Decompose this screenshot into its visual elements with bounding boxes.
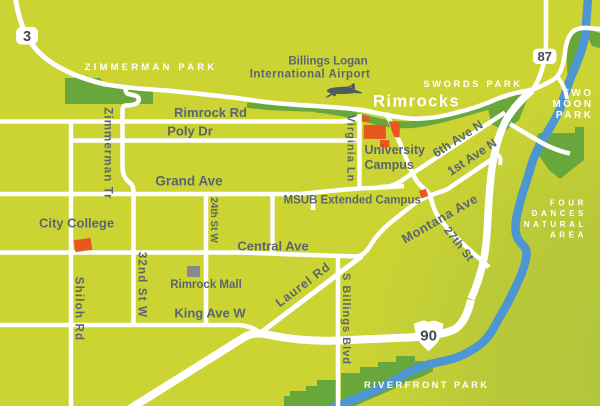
svg-text:S Billings Blvd: S Billings Blvd: [340, 273, 352, 365]
svg-text:Shiloh Rd: Shiloh Rd: [73, 277, 85, 341]
svg-text:TWO: TWO: [563, 88, 594, 99]
svg-text:Zimmerman Tr: Zimmerman Tr: [102, 107, 114, 199]
svg-text:Central Ave: Central Ave: [237, 239, 308, 254]
svg-text:SWORDS PARK: SWORDS PARK: [423, 78, 522, 89]
svg-text:PARK: PARK: [556, 110, 594, 121]
svg-text:Rimrock Rd: Rimrock Rd: [174, 105, 247, 120]
svg-text:University: University: [365, 143, 425, 157]
svg-text:FOUR: FOUR: [550, 199, 587, 208]
svg-text:DANCES: DANCES: [532, 209, 587, 218]
svg-text:24th St W: 24th St W: [208, 197, 219, 243]
svg-text:MSUB Extended Campus: MSUB Extended Campus: [284, 195, 421, 207]
svg-text:90: 90: [420, 328, 437, 345]
svg-text:City College: City College: [39, 216, 114, 231]
svg-text:Virginia Ln: Virginia Ln: [345, 115, 357, 183]
svg-text:Rimrocks: Rimrocks: [373, 93, 460, 111]
svg-text:NATURAL: NATURAL: [524, 220, 587, 229]
svg-text:RIVERFRONT PARK: RIVERFRONT PARK: [364, 379, 489, 390]
svg-text:MOON: MOON: [552, 99, 593, 110]
svg-text:ZIMMERMAN PARK: ZIMMERMAN PARK: [85, 62, 218, 73]
svg-text:Grand Ave: Grand Ave: [155, 174, 223, 189]
svg-text:AREA: AREA: [550, 231, 587, 240]
svg-text:32nd St W: 32nd St W: [136, 252, 148, 318]
svg-text:Campus: Campus: [365, 158, 414, 172]
svg-text:Poly Dr: Poly Dr: [167, 124, 213, 139]
svg-text:Billings Logan: Billings Logan: [288, 56, 367, 68]
svg-text:87: 87: [537, 49, 551, 64]
svg-text:King Ave W: King Ave W: [174, 306, 246, 321]
svg-text:International Airport: International Airport: [250, 69, 371, 81]
svg-text:3: 3: [23, 29, 31, 45]
svg-text:Rimrock Mall: Rimrock Mall: [170, 279, 242, 291]
